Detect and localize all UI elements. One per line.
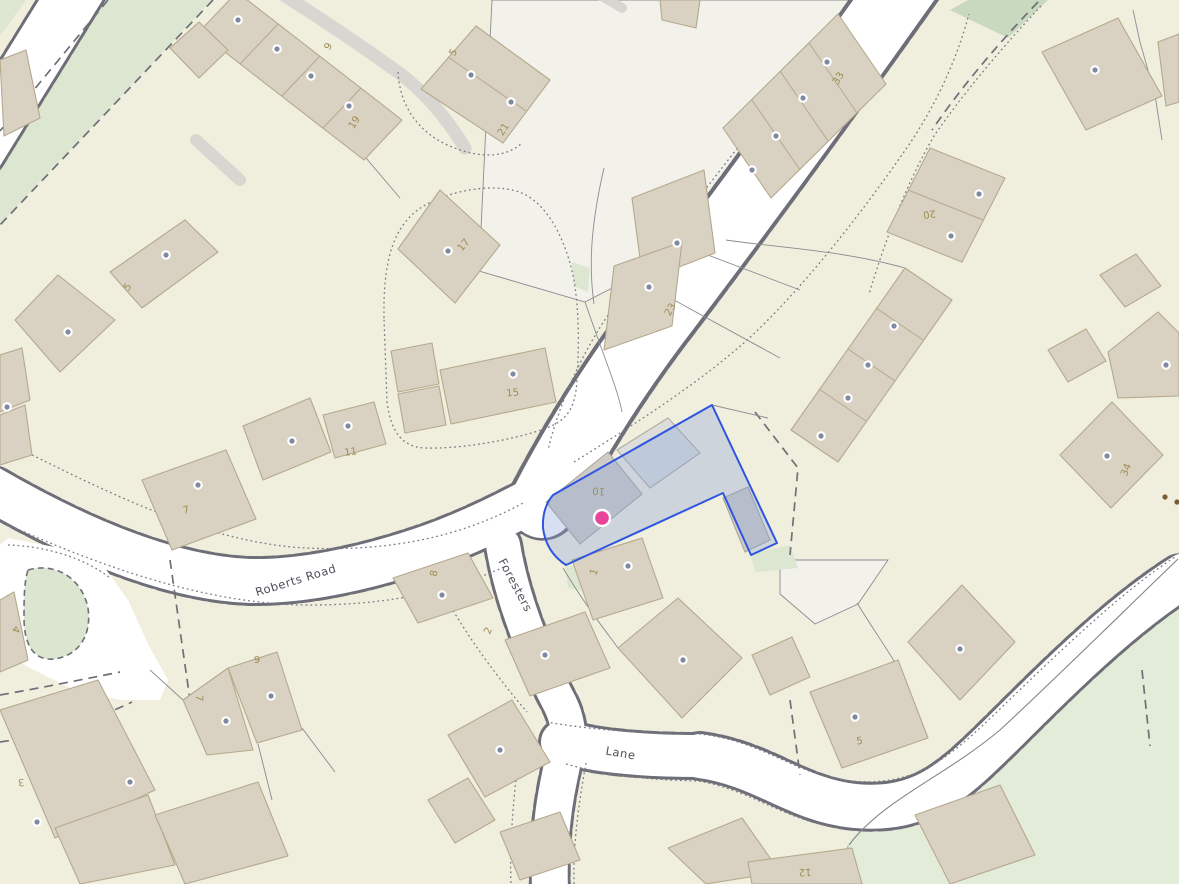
map-marker[interactable] xyxy=(594,510,610,526)
house-number-label: 15 xyxy=(506,387,520,399)
entrance-marker xyxy=(125,777,135,787)
entrance-marker xyxy=(161,250,171,260)
entrance-marker xyxy=(678,655,688,665)
entrance-marker xyxy=(443,246,453,256)
house-number-label: 3 xyxy=(18,776,25,788)
entrance-marker xyxy=(889,321,899,331)
entrance-marker xyxy=(843,393,853,403)
entrance-marker xyxy=(863,360,873,370)
entrance-marker xyxy=(287,436,297,446)
entrance-marker xyxy=(221,716,231,726)
house-number-label: 20 xyxy=(922,207,936,220)
map-svg[interactable]: 9195213317231511572034821597341210Robert… xyxy=(0,0,1179,884)
entrance-marker xyxy=(623,561,633,571)
entrance-marker xyxy=(798,93,808,103)
entrance-marker xyxy=(306,71,316,81)
entrance-marker xyxy=(850,712,860,722)
entrance-marker xyxy=(343,421,353,431)
house-number-label: 10 xyxy=(592,484,606,496)
entrance-marker xyxy=(193,480,203,490)
entrance-marker xyxy=(1161,360,1171,370)
entrance-marker xyxy=(974,189,984,199)
entrance-marker xyxy=(822,57,832,67)
entrance-marker xyxy=(540,650,550,660)
house-number-label: 9 xyxy=(254,655,260,666)
entrance-marker xyxy=(466,70,476,80)
entrance-marker xyxy=(495,745,505,755)
map-canvas[interactable]: 9195213317231511572034821597341210Robert… xyxy=(0,0,1179,884)
entrance-marker xyxy=(233,15,243,25)
entrance-marker xyxy=(344,101,354,111)
entrance-marker xyxy=(437,590,447,600)
house-number-label: 11 xyxy=(344,446,358,459)
entrance-marker xyxy=(506,97,516,107)
entrance-marker xyxy=(63,327,73,337)
entrance-marker xyxy=(266,691,276,701)
location-marker-layer[interactable] xyxy=(594,510,610,526)
entrance-marker xyxy=(672,238,682,248)
entrance-marker xyxy=(508,369,518,379)
entrance-marker xyxy=(771,131,781,141)
entrance-marker xyxy=(955,644,965,654)
entrance-marker xyxy=(272,44,282,54)
entrance-marker xyxy=(2,402,12,412)
entrance-marker xyxy=(816,431,826,441)
entrance-marker xyxy=(1102,451,1112,461)
house-number-label: 7 xyxy=(193,695,204,702)
entrance-marker xyxy=(644,282,654,292)
tree-marker xyxy=(1162,494,1167,499)
entrance-marker xyxy=(747,165,757,175)
entrance-marker xyxy=(1090,65,1100,75)
entrance-marker xyxy=(32,817,42,827)
entrance-marker xyxy=(946,231,956,241)
house-number-label: 12 xyxy=(799,866,812,877)
